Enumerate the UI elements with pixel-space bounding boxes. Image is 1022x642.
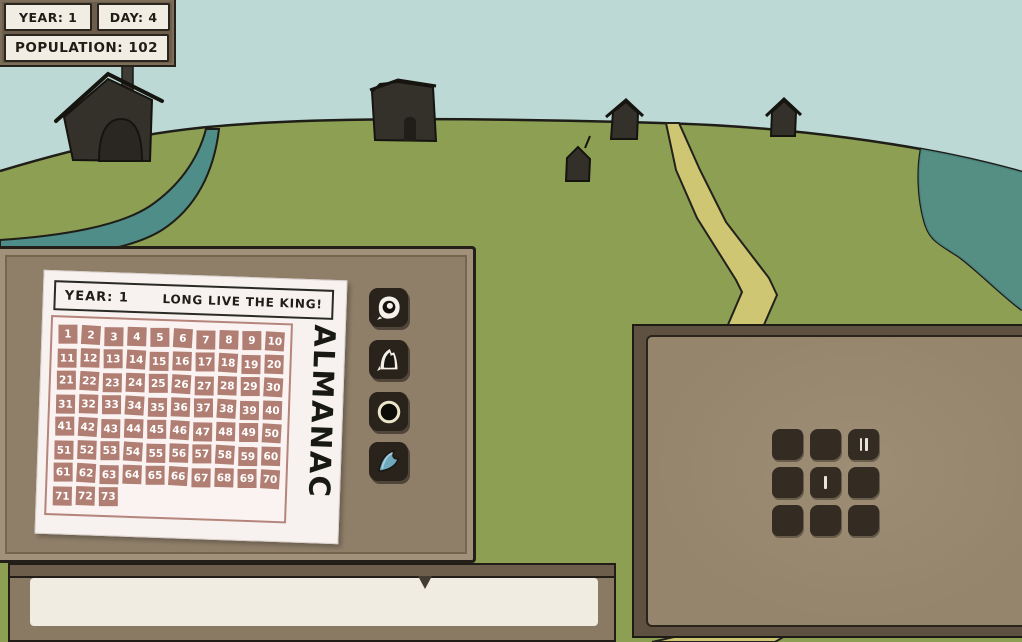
- build-panel-body: [646, 335, 1022, 627]
- calendar-day-cell: 71: [53, 486, 72, 505]
- calendar-day-cell: 1: [58, 325, 77, 344]
- calendar-day-cell: 33: [102, 395, 121, 414]
- build-panel: [632, 324, 1022, 638]
- calendar: 1234567891011121314151617181920212223242…: [44, 315, 293, 523]
- calendar-day-cell: 65: [146, 466, 165, 485]
- calendar-day-cell: 55: [146, 444, 165, 463]
- almanac-paper: YEAR: 1 LONG LIVE THE KING! 123456789101…: [34, 270, 347, 544]
- calendar-day-cell: 73: [99, 487, 118, 506]
- calendar-day-cell: 15: [149, 352, 168, 371]
- dialog-top-rail: [8, 563, 616, 578]
- calendar-day-cell: 40: [263, 401, 283, 421]
- calendar-day-cell: 26: [171, 374, 191, 394]
- calendar-day-cell: 28: [217, 376, 237, 396]
- calendar-day-cell: 30: [263, 377, 283, 397]
- calendar-day-cell: 7: [196, 330, 215, 349]
- calendar-day-cell: 19: [241, 355, 260, 374]
- building-slot[interactable]: [810, 505, 841, 536]
- calendar-grid: 1234567891011121314151617181920212223242…: [53, 324, 285, 512]
- tally-mark: [860, 438, 863, 451]
- calendar-day-cell: 10: [265, 331, 285, 351]
- calendar-day-cell: 61: [54, 463, 73, 482]
- building-slot[interactable]: [772, 429, 803, 460]
- calendar-day-cell: 8: [219, 330, 239, 350]
- calendar-day-cell: 48: [216, 422, 236, 442]
- calendar-day-cell: 58: [215, 445, 235, 465]
- house-mid: [370, 80, 436, 141]
- calendar-day-cell: 69: [238, 469, 257, 488]
- calendar-day-cell: 47: [193, 422, 212, 441]
- calendar-day-cell: 43: [101, 419, 120, 438]
- calendar-day-cell: 44: [124, 419, 144, 439]
- calendar-day-cell: 39: [240, 401, 259, 420]
- almanac-motto-label: LONG LIVE THE KING!: [162, 292, 323, 312]
- calendar-day-cell: 24: [125, 373, 145, 393]
- eye-event-button[interactable]: [369, 288, 408, 327]
- calendar-day-cell: 59: [238, 447, 257, 466]
- tally-mark: [865, 438, 868, 451]
- calendar-day-cell: 50: [262, 423, 282, 443]
- calendar-day-cell: 70: [260, 469, 280, 489]
- calendar-day-cell: 52: [77, 440, 97, 460]
- calendar-day-cell: 66: [168, 466, 188, 486]
- calendar-day-cell: 11: [57, 348, 76, 367]
- day-display: DAY: 4: [97, 3, 170, 31]
- calendar-day-cell: 42: [78, 417, 98, 437]
- calendar-day-cell: 63: [99, 465, 118, 484]
- calendar-day-cell: 51: [54, 440, 73, 459]
- calendar-day-cell: 41: [55, 417, 74, 436]
- calendar-day-cell: 6: [173, 328, 193, 348]
- calendar-day-cell: 64: [122, 465, 142, 485]
- calendar-day-cell: 18: [218, 353, 238, 373]
- eye-icon: [372, 291, 406, 325]
- calendar-day-cell: 38: [216, 399, 236, 419]
- calendar-day-cell: 62: [76, 463, 96, 483]
- calendar-day-cell: 72: [76, 486, 96, 506]
- tally-mark: [824, 476, 827, 489]
- calendar-day-cell: 37: [194, 398, 213, 417]
- building-slot[interactable]: [848, 429, 879, 460]
- calendar-day-cell: 32: [79, 394, 99, 414]
- calendar-day-cell: 27: [195, 376, 214, 395]
- calendar-day-cell: 35: [148, 398, 167, 417]
- wave-icon: [372, 445, 406, 479]
- calendar-day-cell: 3: [104, 327, 123, 346]
- calendar-day-cell: 34: [124, 395, 144, 415]
- hud-sign: YEAR: 1 DAY: 4 POPULATION: 102: [0, 0, 176, 67]
- building-slot[interactable]: [772, 467, 803, 498]
- calendar-day-cell: 54: [123, 441, 143, 461]
- calendar-day-cell: 67: [191, 468, 210, 487]
- calendar-day-cell: 13: [104, 349, 123, 368]
- almanac-year-label: YEAR: 1: [65, 288, 130, 305]
- moon-event-button[interactable]: [369, 392, 408, 431]
- building-slot[interactable]: [772, 505, 803, 536]
- calendar-day-cell: 16: [172, 351, 192, 371]
- calendar-day-cell: 2: [81, 325, 101, 345]
- calendar-day-cell: 53: [100, 441, 119, 460]
- calendar-day-cell: 45: [147, 420, 166, 439]
- rat-event-button[interactable]: [369, 340, 408, 379]
- calendar-day-cell: 4: [127, 327, 147, 347]
- calendar-day-cell: 46: [170, 420, 190, 440]
- calendar-day-cell: 60: [261, 446, 281, 466]
- building-slot[interactable]: [848, 505, 879, 536]
- building-slot[interactable]: [810, 467, 841, 498]
- almanac-panel: YEAR: 1 LONG LIVE THE KING! 123456789101…: [0, 246, 476, 563]
- moon-icon: [372, 395, 406, 429]
- rat-icon: [372, 343, 406, 377]
- almanac-header: YEAR: 1 LONG LIVE THE KING!: [53, 280, 334, 320]
- calendar-day-cell: 22: [79, 371, 99, 391]
- calendar-day-cell: 9: [242, 331, 261, 350]
- calendar-day-cell: 31: [56, 394, 75, 413]
- population-display: POPULATION: 102: [4, 34, 169, 62]
- dialog-notch-icon: [418, 576, 432, 589]
- calendar-day-cell: 56: [169, 443, 189, 463]
- calendar-day-cell: 25: [149, 374, 168, 393]
- building-slot-grid: [772, 429, 879, 536]
- calendar-day-cell: 5: [150, 328, 169, 347]
- building-slot[interactable]: [810, 429, 841, 460]
- building-slot[interactable]: [848, 467, 879, 498]
- calendar-day-cell: 23: [103, 373, 122, 392]
- dialog-text-box[interactable]: [30, 578, 598, 626]
- calendar-day-cell: 36: [171, 397, 191, 417]
- calendar-day-cell: 12: [80, 348, 100, 368]
- calendar-day-cell: 17: [196, 352, 215, 371]
- calendar-day-cell: 14: [126, 349, 146, 369]
- calendar-day-cell: 20: [264, 355, 284, 375]
- calendar-day-cell: 68: [214, 468, 234, 488]
- year-display: YEAR: 1: [4, 3, 92, 31]
- almanac-title: ALMANAC: [302, 324, 338, 539]
- calendar-day-cell: 57: [192, 444, 211, 463]
- wave-event-button[interactable]: [369, 442, 408, 481]
- dialog-panel: [8, 563, 616, 642]
- calendar-day-cell: 21: [57, 371, 76, 390]
- calendar-day-cell: 29: [241, 377, 260, 396]
- calendar-day-cell: 49: [239, 423, 258, 442]
- game-stage: YEAR: 1 DAY: 4 POPULATION: 102 YEAR: 1 L…: [0, 0, 1022, 642]
